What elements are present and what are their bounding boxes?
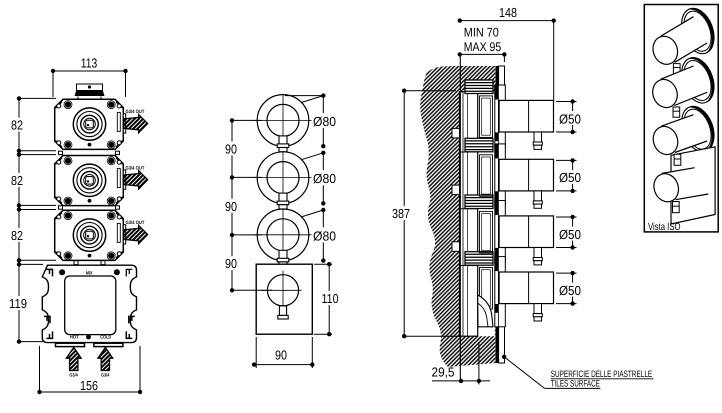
svg-text:MIX: MIX bbox=[86, 270, 93, 276]
svg-text:Ø80: Ø80 bbox=[313, 228, 336, 243]
svg-text:119: 119 bbox=[9, 296, 27, 311]
svg-text:Ø50: Ø50 bbox=[559, 227, 581, 242]
svg-text:TILES SURFACE: TILES SURFACE bbox=[551, 379, 600, 389]
svg-text:G3/4: G3/4 bbox=[101, 373, 110, 378]
svg-text:G3/4: G3/4 bbox=[69, 373, 78, 378]
svg-text:148: 148 bbox=[499, 5, 517, 20]
svg-text:HOT: HOT bbox=[70, 335, 79, 341]
svg-text:Vista ISO: Vista ISO bbox=[648, 222, 681, 233]
svg-text:90: 90 bbox=[275, 348, 287, 363]
svg-text:29,5: 29,5 bbox=[432, 364, 455, 379]
svg-text:113: 113 bbox=[81, 56, 98, 71]
svg-text:90: 90 bbox=[225, 256, 237, 271]
svg-text:Ø80: Ø80 bbox=[313, 114, 336, 129]
svg-text:Ø80: Ø80 bbox=[313, 171, 336, 186]
svg-text:Ø50: Ø50 bbox=[559, 170, 581, 185]
svg-text:90: 90 bbox=[225, 199, 237, 214]
svg-text:90: 90 bbox=[225, 142, 237, 157]
svg-text:82: 82 bbox=[11, 228, 23, 243]
svg-text:110: 110 bbox=[322, 291, 339, 306]
svg-text:Ø50: Ø50 bbox=[559, 283, 581, 298]
svg-text:82: 82 bbox=[11, 118, 23, 133]
svg-text:Ø50: Ø50 bbox=[559, 111, 581, 126]
svg-text:COLD: COLD bbox=[100, 335, 111, 341]
svg-text:SUPERFICIE DELLE PIASTRELLE: SUPERFICIE DELLE PIASTRELLE bbox=[551, 369, 653, 379]
svg-text:MAX 95: MAX 95 bbox=[464, 40, 501, 54]
svg-text:MIN 70: MIN 70 bbox=[464, 26, 499, 40]
svg-text:156: 156 bbox=[80, 378, 98, 393]
svg-text:82: 82 bbox=[11, 173, 23, 188]
svg-text:387: 387 bbox=[392, 206, 410, 221]
